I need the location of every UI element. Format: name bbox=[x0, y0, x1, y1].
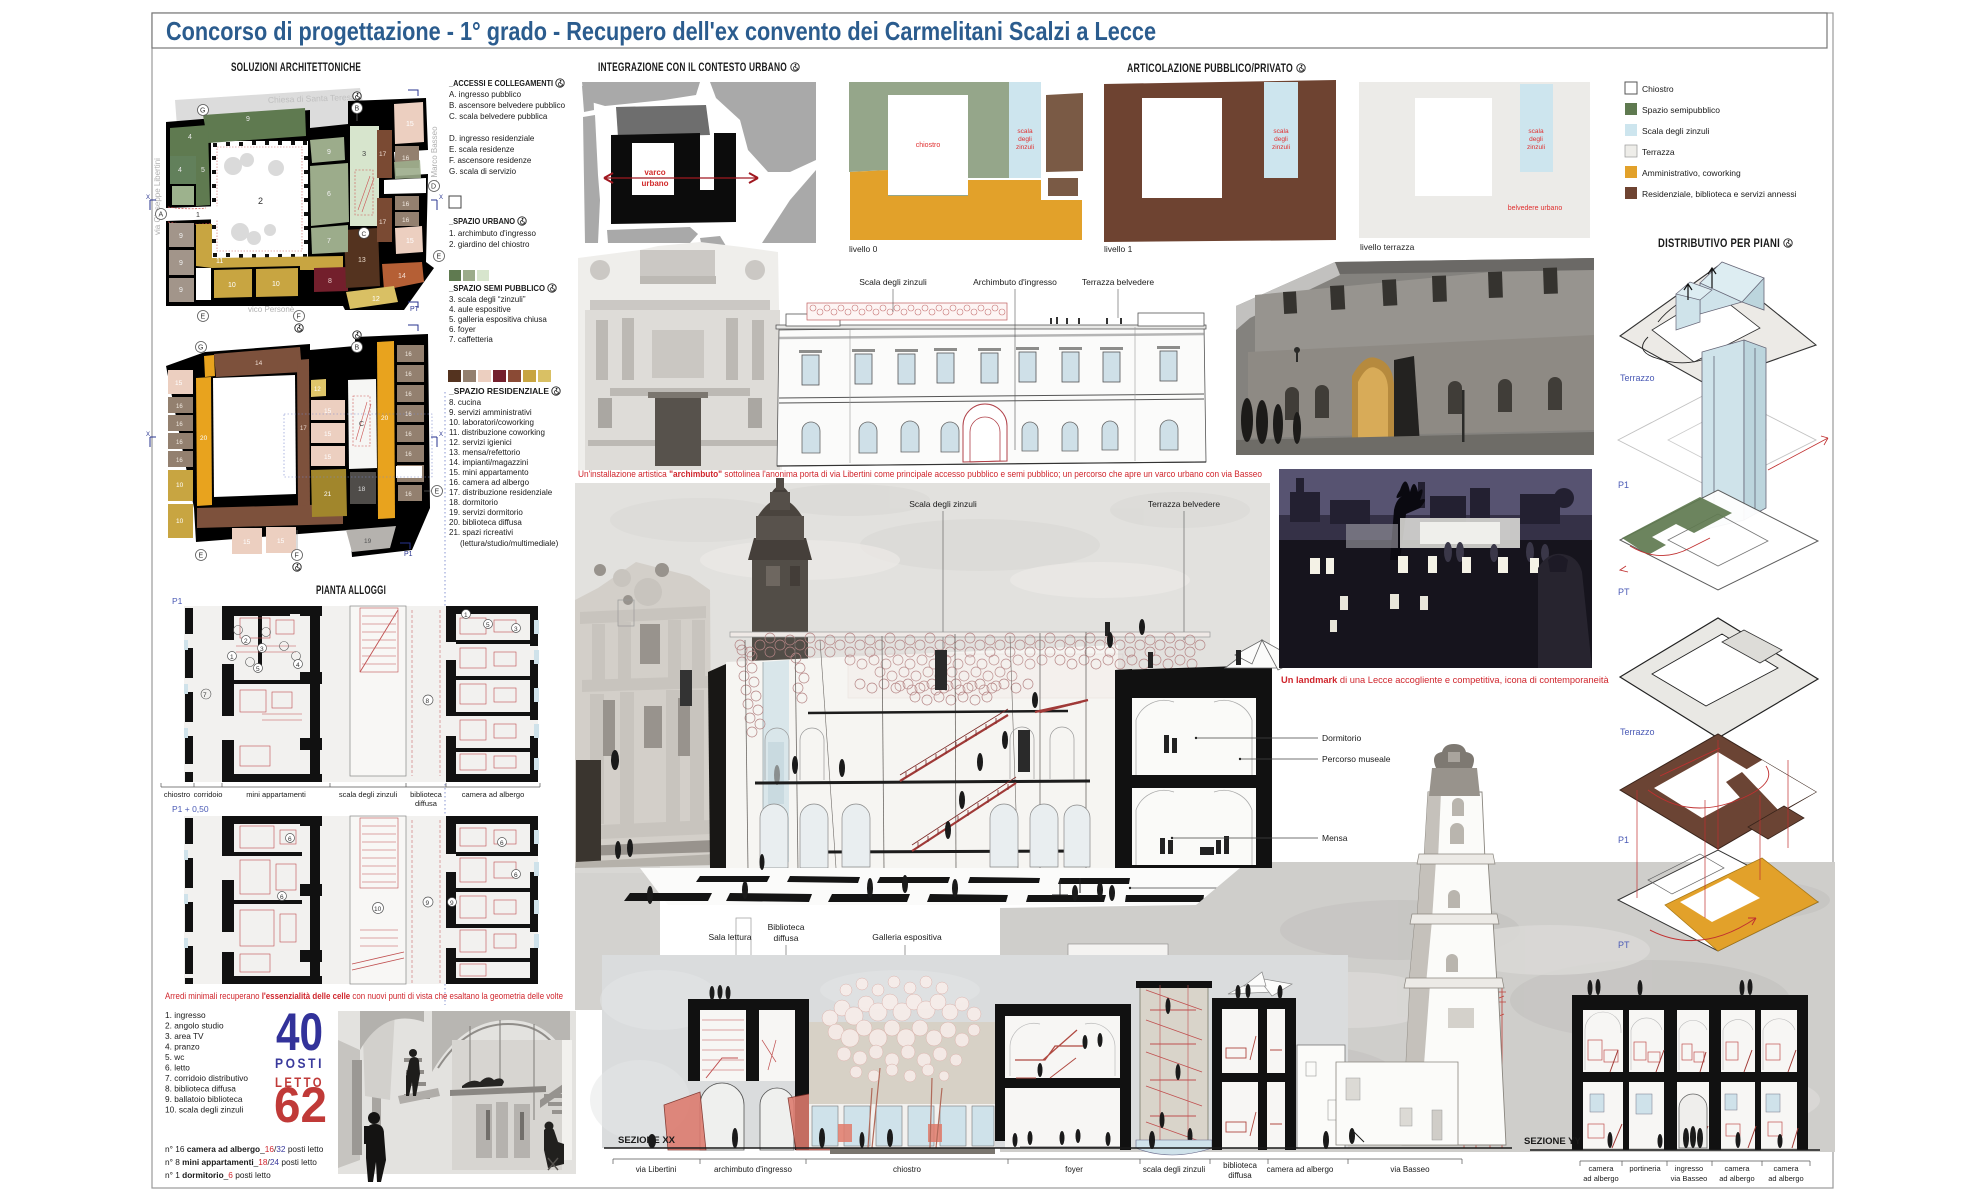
svg-text:livello terrazza: livello terrazza bbox=[1360, 242, 1415, 252]
svg-text:4. pranzo: 4. pranzo bbox=[165, 1042, 200, 1052]
svg-text:40: 40 bbox=[276, 1003, 323, 1062]
svg-text:Un landmark di una Lecce accog: Un landmark di una Lecce accogliente e c… bbox=[1281, 675, 1609, 685]
svg-text:G. scala di servizio: G. scala di servizio bbox=[449, 167, 517, 176]
svg-text:8. cucina: 8. cucina bbox=[449, 398, 482, 407]
svg-text:12: 12 bbox=[372, 296, 380, 303]
svg-text:16: 16 bbox=[405, 432, 412, 438]
svg-text:camera ad albergo: camera ad albergo bbox=[462, 790, 525, 799]
svg-text:D: D bbox=[431, 184, 436, 191]
svg-text:16: 16 bbox=[405, 492, 412, 498]
svg-text:11. distribuzione coworking: 11. distribuzione coworking bbox=[449, 428, 545, 437]
svg-text:(lettura/studio/multimediale): (lettura/studio/multimediale) bbox=[460, 539, 559, 548]
svg-text:n° 1 dormitorio_6 posti letto: n° 1 dormitorio_6 posti letto bbox=[165, 1170, 271, 1180]
svg-text:11: 11 bbox=[216, 258, 223, 265]
svg-text:10: 10 bbox=[272, 281, 280, 288]
svg-text:6: 6 bbox=[280, 894, 284, 901]
svg-text:20. biblioteca diffusa: 20. biblioteca diffusa bbox=[449, 518, 522, 527]
svg-text:P1: P1 bbox=[172, 596, 183, 606]
svg-text:SOLUZIONI ARCHITETTONICHE: SOLUZIONI ARCHITETTONICHE bbox=[231, 62, 361, 74]
svg-text:7: 7 bbox=[203, 692, 207, 699]
svg-text:diffusa: diffusa bbox=[774, 933, 799, 943]
svg-text:A. ingresso pubblico: A. ingresso pubblico bbox=[449, 90, 522, 99]
svg-text:ad albergo: ad albergo bbox=[1768, 1174, 1803, 1183]
svg-text:14: 14 bbox=[255, 360, 263, 367]
svg-text:16. camera ad albergo: 16. camera ad albergo bbox=[449, 478, 530, 487]
svg-text:chiostro: chiostro bbox=[893, 1165, 922, 1174]
svg-text:6. foyer: 6. foyer bbox=[449, 325, 476, 334]
svg-text:scala degli zinzuli: scala degli zinzuli bbox=[1143, 1165, 1205, 1174]
svg-text:7: 7 bbox=[327, 238, 331, 245]
svg-text:14. impianti/magazzini: 14. impianti/magazzini bbox=[449, 458, 528, 467]
svg-text:degli: degli bbox=[1274, 136, 1288, 143]
svg-text:SEZIONE YY: SEZIONE YY bbox=[1524, 1136, 1582, 1147]
svg-text:16: 16 bbox=[405, 392, 412, 398]
svg-text:X: X bbox=[146, 432, 150, 438]
svg-text:10: 10 bbox=[176, 482, 184, 489]
svg-text:archimbuto d'ingresso: archimbuto d'ingresso bbox=[714, 1165, 793, 1174]
svg-text:17: 17 bbox=[300, 426, 307, 432]
svg-text:P1: P1 bbox=[404, 551, 413, 558]
svg-text:Residenziale, biblioteca e ser: Residenziale, biblioteca e servizi annes… bbox=[1642, 189, 1797, 199]
svg-text:biblioteca: biblioteca bbox=[410, 790, 443, 799]
svg-text:G: G bbox=[198, 345, 203, 352]
svg-text:PIANTA ALLOGGI: PIANTA ALLOGGI bbox=[316, 585, 386, 597]
svg-text:_SPAZIO URBANO: _SPAZIO URBANO bbox=[448, 216, 515, 226]
svg-text:camera ad albergo: camera ad albergo bbox=[1267, 1165, 1334, 1174]
svg-text:P1 + 0,50: P1 + 0,50 bbox=[172, 804, 209, 814]
svg-text:X: X bbox=[439, 432, 443, 438]
svg-text:E: E bbox=[199, 553, 204, 560]
svg-text:4: 4 bbox=[296, 662, 300, 669]
svg-text:10: 10 bbox=[228, 282, 236, 289]
svg-text:Dormitorio: Dormitorio bbox=[1322, 733, 1361, 743]
svg-text:n° 16 camera ad albergo_16/32: n° 16 camera ad albergo_16/32 posti lett… bbox=[165, 1144, 324, 1154]
svg-text:20: 20 bbox=[200, 435, 208, 442]
svg-text:Percorso museale: Percorso museale bbox=[1322, 754, 1391, 764]
svg-text:15: 15 bbox=[324, 431, 332, 438]
svg-text:E. scala residenze: E. scala residenze bbox=[449, 145, 515, 154]
svg-text:PT: PT bbox=[1618, 587, 1630, 597]
svg-text:camera: camera bbox=[1773, 1164, 1799, 1173]
svg-text:5. wc: 5. wc bbox=[165, 1052, 184, 1062]
svg-text:ad albergo: ad albergo bbox=[1719, 1174, 1754, 1183]
svg-text:15: 15 bbox=[324, 454, 332, 461]
svg-text:2. giardino del chiostro: 2. giardino del chiostro bbox=[449, 240, 530, 249]
svg-text:C. scala belvedere pubblica: C. scala belvedere pubblica bbox=[449, 112, 548, 121]
svg-text:A: A bbox=[159, 212, 164, 219]
svg-text:16: 16 bbox=[176, 422, 183, 428]
svg-text:8: 8 bbox=[328, 278, 332, 285]
svg-text:9: 9 bbox=[426, 900, 430, 907]
svg-text:9. ballatoio biblioteca: 9. ballatoio biblioteca bbox=[165, 1094, 243, 1104]
svg-text:16: 16 bbox=[405, 412, 412, 418]
svg-text:portineria: portineria bbox=[1629, 1164, 1661, 1173]
svg-text:Amministrativo, coworking: Amministrativo, coworking bbox=[1642, 168, 1741, 178]
svg-text:belvedere urbano: belvedere urbano bbox=[1508, 205, 1563, 212]
svg-text:17: 17 bbox=[379, 219, 387, 226]
svg-text:scala degli zinzuli: scala degli zinzuli bbox=[339, 790, 398, 799]
svg-text:Scala degli zinzuli: Scala degli zinzuli bbox=[1642, 126, 1710, 136]
svg-text:PT: PT bbox=[410, 306, 420, 313]
svg-text:10. laboratori/coworking: 10. laboratori/coworking bbox=[449, 418, 534, 427]
svg-text:ARTICOLAZIONE PUBBLICO/PRIVATO: ARTICOLAZIONE PUBBLICO/PRIVATO bbox=[1127, 63, 1293, 75]
svg-text:chiostro: chiostro bbox=[164, 790, 190, 799]
svg-text:_SPAZIO RESIDENZIALE: _SPAZIO RESIDENZIALE bbox=[448, 386, 549, 396]
svg-text:Galleria espositiva: Galleria espositiva bbox=[872, 932, 942, 942]
svg-text:P1: P1 bbox=[1618, 480, 1629, 490]
svg-text:10: 10 bbox=[374, 906, 382, 913]
svg-text:6: 6 bbox=[288, 836, 292, 843]
svg-text:varco: varco bbox=[644, 168, 665, 177]
svg-text:15: 15 bbox=[406, 238, 414, 245]
svg-text:X: X bbox=[439, 195, 443, 201]
svg-text:9: 9 bbox=[179, 233, 183, 240]
svg-text:DISTRIBUTIVO PER PIANI: DISTRIBUTIVO PER PIANI bbox=[1658, 238, 1780, 250]
svg-text:16: 16 bbox=[405, 352, 412, 358]
svg-text:Spazio semipubblico: Spazio semipubblico bbox=[1642, 105, 1720, 115]
svg-text:10. scala degli zinzuli: 10. scala degli zinzuli bbox=[165, 1105, 244, 1115]
svg-text:16: 16 bbox=[176, 440, 183, 446]
svg-text:7. corridoio distributivo: 7. corridoio distributivo bbox=[165, 1073, 248, 1083]
svg-text:G: G bbox=[200, 108, 205, 115]
svg-text:19. servizi dormitorio: 19. servizi dormitorio bbox=[449, 508, 523, 517]
svg-text:D. ingresso residenziale: D. ingresso residenziale bbox=[449, 134, 535, 143]
svg-text:Mensa: Mensa bbox=[1322, 833, 1348, 843]
svg-text:INTEGRAZIONE CON IL CONTESTO U: INTEGRAZIONE CON IL CONTESTO URBANO bbox=[598, 62, 787, 74]
svg-text:Concorso di progettazione - 1°: Concorso di progettazione - 1° grado - R… bbox=[166, 16, 1156, 46]
svg-text:POSTI: POSTI bbox=[275, 1055, 324, 1071]
svg-text:12: 12 bbox=[314, 387, 321, 393]
svg-text:X: X bbox=[146, 195, 150, 201]
svg-text:urbano: urbano bbox=[641, 179, 668, 188]
svg-text:F: F bbox=[297, 314, 301, 321]
svg-text:zinzuli: zinzuli bbox=[1527, 144, 1545, 151]
svg-text:21. spazi ricreativi: 21. spazi ricreativi bbox=[449, 528, 513, 537]
svg-text:62: 62 bbox=[274, 1077, 327, 1133]
svg-text:P1: P1 bbox=[1618, 835, 1629, 845]
svg-text:18. dormitorio: 18. dormitorio bbox=[449, 498, 498, 507]
svg-text:C: C bbox=[362, 231, 367, 238]
svg-text:8. biblioteca diffusa: 8. biblioteca diffusa bbox=[165, 1084, 236, 1094]
svg-text:scala: scala bbox=[1528, 128, 1544, 135]
svg-text:Terrazzo: Terrazzo bbox=[1620, 373, 1655, 383]
svg-text:Sala lettura: Sala lettura bbox=[709, 932, 752, 942]
svg-text:corridoio: corridoio bbox=[194, 790, 223, 799]
svg-text:14: 14 bbox=[398, 273, 406, 280]
svg-text:15: 15 bbox=[175, 380, 183, 387]
svg-text:zinzuli: zinzuli bbox=[1272, 144, 1290, 151]
svg-text:diffusa: diffusa bbox=[1228, 1171, 1252, 1180]
svg-text:SEZIONE XX: SEZIONE XX bbox=[618, 1135, 676, 1146]
svg-text:scala: scala bbox=[1273, 128, 1289, 135]
svg-text:5: 5 bbox=[201, 167, 205, 174]
svg-text:20: 20 bbox=[381, 415, 389, 422]
svg-text:Scala degli zinzuli: Scala degli zinzuli bbox=[859, 277, 927, 287]
svg-text:6: 6 bbox=[514, 872, 518, 879]
svg-text:2: 2 bbox=[258, 196, 263, 206]
svg-text:9. servizi amministrativi: 9. servizi amministrativi bbox=[449, 408, 532, 417]
svg-text:2. angolo studio: 2. angolo studio bbox=[165, 1021, 224, 1031]
svg-text:9: 9 bbox=[246, 116, 250, 123]
svg-text:Chiostro: Chiostro bbox=[1642, 84, 1674, 94]
svg-text:camera: camera bbox=[1724, 1164, 1750, 1173]
svg-text:3: 3 bbox=[260, 646, 264, 653]
svg-text:16: 16 bbox=[405, 372, 412, 378]
svg-text:camera: camera bbox=[1588, 1164, 1614, 1173]
svg-text:vico Personè: vico Personè bbox=[248, 305, 295, 314]
svg-text:zinzuli: zinzuli bbox=[1016, 144, 1034, 151]
svg-text:19: 19 bbox=[364, 538, 372, 545]
svg-text:16: 16 bbox=[176, 458, 183, 464]
svg-text:B: B bbox=[355, 106, 360, 113]
svg-text:degli: degli bbox=[1529, 136, 1543, 143]
svg-text:F: F bbox=[295, 553, 299, 560]
svg-text:6. letto: 6. letto bbox=[165, 1063, 190, 1073]
svg-text:Arredi minimali recuperano l'e: Arredi minimali recuperano l'essenzialit… bbox=[165, 991, 563, 1001]
svg-text:PT: PT bbox=[1618, 940, 1630, 950]
svg-text:ad albergo: ad albergo bbox=[1583, 1174, 1618, 1183]
svg-text:chiostro: chiostro bbox=[916, 142, 941, 149]
svg-text:9: 9 bbox=[179, 287, 183, 294]
svg-text:1. archimbuto d'ingresso: 1. archimbuto d'ingresso bbox=[449, 229, 536, 238]
svg-text:via Basseo: via Basseo bbox=[1390, 1165, 1430, 1174]
svg-text:E: E bbox=[437, 254, 442, 261]
svg-text:E: E bbox=[435, 489, 440, 496]
svg-text:3: 3 bbox=[362, 149, 366, 158]
svg-text:9: 9 bbox=[179, 260, 183, 267]
svg-text:Terrazza belvedere: Terrazza belvedere bbox=[1148, 499, 1221, 509]
svg-text:4: 4 bbox=[188, 134, 192, 141]
svg-text:15: 15 bbox=[406, 121, 414, 128]
svg-text:7. caffetteria: 7. caffetteria bbox=[449, 335, 493, 344]
svg-text:scala: scala bbox=[1017, 128, 1033, 135]
svg-text:n° 8 mini appartamenti_18/24 p: n° 8 mini appartamenti_18/24 posti letto bbox=[165, 1157, 317, 1167]
svg-text:6: 6 bbox=[327, 191, 331, 198]
svg-text:via Basseo: via Basseo bbox=[1671, 1174, 1708, 1183]
svg-text:_ACCESSI E COLLEGAMENTI: _ACCESSI E COLLEGAMENTI bbox=[448, 78, 553, 88]
svg-text:13: 13 bbox=[358, 257, 366, 264]
svg-text:Terrazza: Terrazza bbox=[1642, 147, 1675, 157]
svg-text:mini appartamenti: mini appartamenti bbox=[246, 790, 306, 799]
svg-text:ingresso: ingresso bbox=[1675, 1164, 1703, 1173]
svg-text:via Libertini: via Libertini bbox=[636, 1165, 677, 1174]
svg-text:foyer: foyer bbox=[1065, 1165, 1083, 1174]
svg-text:5. galleria espositiva chiusa: 5. galleria espositiva chiusa bbox=[449, 315, 547, 324]
svg-text:F. ascensore residenze: F. ascensore residenze bbox=[449, 156, 532, 165]
svg-text:9: 9 bbox=[327, 149, 331, 156]
svg-text:Terrazza belvedere: Terrazza belvedere bbox=[1082, 277, 1155, 287]
svg-text:Un'installazione artistica "ar: Un'installazione artistica "archimbuto" … bbox=[578, 469, 1262, 479]
svg-text:Terrazzo: Terrazzo bbox=[1620, 727, 1655, 737]
svg-text:_SPAZIO SEMI PUBBLICO: _SPAZIO SEMI PUBBLICO bbox=[448, 283, 545, 293]
svg-text:C: C bbox=[359, 421, 364, 428]
svg-text:1: 1 bbox=[464, 612, 468, 619]
svg-text:16: 16 bbox=[405, 452, 412, 458]
svg-text:9: 9 bbox=[450, 900, 454, 907]
svg-text:5: 5 bbox=[256, 666, 260, 673]
svg-text:17. distribuzione residenziale: 17. distribuzione residenziale bbox=[449, 488, 553, 497]
svg-text:E: E bbox=[201, 314, 206, 321]
svg-text:16: 16 bbox=[176, 404, 183, 410]
svg-text:3. scala degli “zinzuli”: 3. scala degli “zinzuli” bbox=[449, 295, 526, 304]
svg-text:10: 10 bbox=[176, 518, 184, 525]
svg-text:2: 2 bbox=[244, 638, 248, 645]
svg-text:degli: degli bbox=[1018, 136, 1032, 143]
svg-text:Biblioteca: Biblioteca bbox=[768, 922, 805, 932]
svg-text:diffusa: diffusa bbox=[415, 799, 438, 808]
svg-text:15. mini appartamento: 15. mini appartamento bbox=[449, 468, 529, 477]
svg-text:B: B bbox=[355, 345, 360, 352]
svg-text:biblioteca: biblioteca bbox=[1223, 1161, 1257, 1170]
svg-text:via Giuseppe Libertini: via Giuseppe Libertini bbox=[153, 158, 162, 235]
svg-text:15: 15 bbox=[243, 539, 251, 546]
svg-text:livello 0: livello 0 bbox=[849, 244, 878, 254]
svg-text:4. aule espositive: 4. aule espositive bbox=[449, 305, 511, 314]
svg-text:13. mensa/refettorio: 13. mensa/refettorio bbox=[449, 448, 521, 457]
svg-text:3. area TV: 3. area TV bbox=[165, 1031, 204, 1041]
svg-text:1: 1 bbox=[196, 212, 200, 219]
svg-text:Scala degli zinzuli: Scala degli zinzuli bbox=[909, 499, 977, 509]
svg-text:Archimbuto d'ingresso: Archimbuto d'ingresso bbox=[973, 277, 1057, 287]
svg-text:15: 15 bbox=[277, 538, 285, 545]
svg-text:12. servizi igienici: 12. servizi igienici bbox=[449, 438, 512, 447]
svg-text:16: 16 bbox=[402, 217, 410, 224]
svg-text:18: 18 bbox=[358, 486, 366, 493]
svg-text:3: 3 bbox=[514, 626, 518, 633]
svg-text:21: 21 bbox=[324, 491, 332, 498]
svg-text:6: 6 bbox=[500, 840, 504, 847]
svg-text:1: 1 bbox=[230, 654, 234, 661]
svg-text:4: 4 bbox=[178, 167, 182, 174]
svg-text:1. ingresso: 1. ingresso bbox=[165, 1010, 206, 1020]
svg-text:17: 17 bbox=[379, 151, 387, 158]
svg-text:16: 16 bbox=[402, 201, 410, 208]
svg-text:livello 1: livello 1 bbox=[1104, 244, 1133, 254]
svg-text:5: 5 bbox=[486, 622, 490, 629]
svg-text:B. ascensore belvedere pubblic: B. ascensore belvedere pubblico bbox=[449, 101, 566, 110]
svg-text:8: 8 bbox=[426, 698, 430, 705]
